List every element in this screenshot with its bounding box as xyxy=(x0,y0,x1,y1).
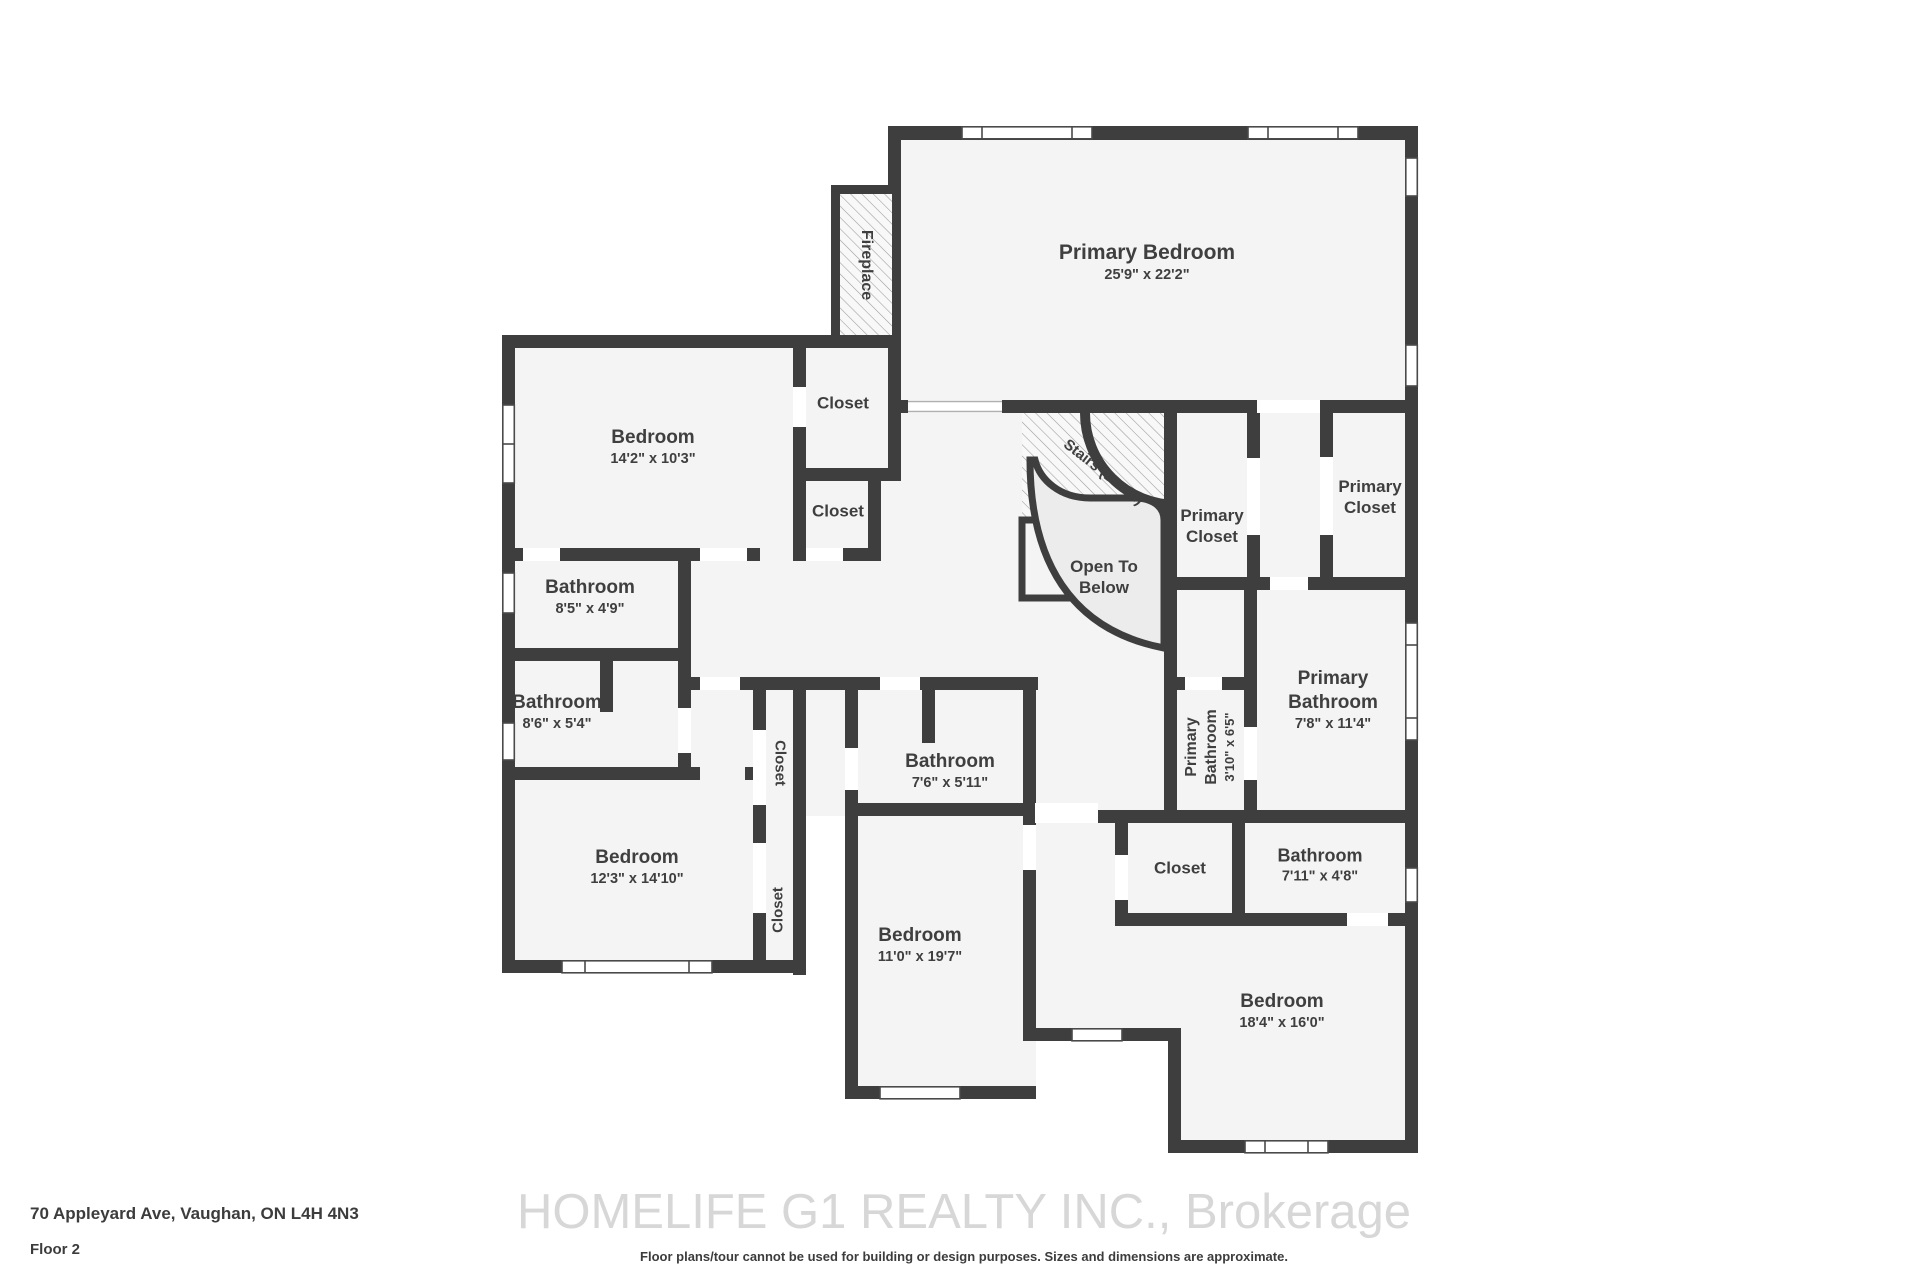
floor-number: Floor 2 xyxy=(30,1241,80,1258)
room-name: Bedroom xyxy=(1239,990,1324,1014)
label-primary-closet-right: Primary Closet xyxy=(1330,476,1410,519)
door-opening xyxy=(1023,825,1036,870)
room-name: Primary Closet xyxy=(1172,505,1252,548)
room-dims: 14'2" x 10'3" xyxy=(610,450,695,468)
wall-segment xyxy=(868,481,881,561)
wall-segment xyxy=(922,690,935,743)
wall-segment xyxy=(920,677,1038,690)
door-opening xyxy=(523,548,560,561)
wall-segment xyxy=(678,753,691,767)
label-bedroom-184: Bedroom 18'4" x 16'0" xyxy=(1239,990,1324,1032)
wall-segment xyxy=(1222,677,1244,690)
window xyxy=(1406,345,1418,386)
room-name: Closet xyxy=(1154,857,1206,878)
door-opening xyxy=(1270,577,1308,590)
label-bedroom-142: Bedroom 14'2" x 10'3" xyxy=(610,426,695,468)
disclaimer-text: Floor plans/tour cannot be used for buil… xyxy=(640,1249,1288,1264)
wall-segment xyxy=(1164,413,1177,823)
room-name: Bathroom xyxy=(1278,845,1363,868)
window xyxy=(1072,1029,1122,1041)
wall-segment xyxy=(753,913,766,973)
wall-segment xyxy=(1308,577,1418,590)
room-dims: 3'10" x 6'5" xyxy=(1222,692,1238,802)
door-opening xyxy=(1347,913,1388,926)
room-dims: 8'5" x 4'9" xyxy=(545,600,635,618)
room-name: Primary Bathroom xyxy=(1273,667,1393,715)
wall-segment xyxy=(1115,823,1128,855)
room-name: Bathroom xyxy=(545,576,635,600)
window xyxy=(1245,1141,1328,1153)
property-address: 70 Appleyard Ave, Vaughan, ON L4H 4N3 xyxy=(30,1204,359,1224)
wall-segment xyxy=(1320,413,1333,457)
window xyxy=(1406,868,1418,902)
label-closet-vertical-2: Closet xyxy=(770,887,789,933)
wall-segment xyxy=(1244,590,1257,727)
door-opening xyxy=(845,748,858,790)
room-dims: 7'8" x 11'4" xyxy=(1273,715,1393,733)
wall-segment xyxy=(1002,400,1257,413)
wall-segment xyxy=(793,427,806,548)
wall-segment xyxy=(502,648,691,661)
room-name: Primary Bathroom xyxy=(1182,692,1222,802)
wall-segment xyxy=(691,677,700,690)
door-opening xyxy=(700,548,747,561)
door-opening xyxy=(793,387,806,427)
label-bathroom-711: Bathroom 7'11" x 4'8" xyxy=(1278,845,1363,886)
room-dims: 25'9" x 22'2" xyxy=(1059,266,1235,284)
room-name: Fireplace xyxy=(856,230,876,300)
label-bedroom-123: Bedroom 12'3" x 14'10" xyxy=(590,846,683,888)
label-primary-closet-left: Primary Closet xyxy=(1172,505,1252,548)
window xyxy=(1248,127,1358,139)
room-name: Closet xyxy=(770,887,789,933)
room-name: Bedroom xyxy=(610,426,695,450)
label-closet-vertical-1: Closet xyxy=(770,740,789,786)
wall-segment xyxy=(888,126,901,192)
window xyxy=(1406,623,1418,740)
room-name: Closet xyxy=(817,392,869,413)
floor-plan-drawing xyxy=(0,0,1920,1280)
room-name: Closet xyxy=(770,740,789,786)
wall-segment xyxy=(845,677,858,748)
brokerage-watermark: HOMELIFE G1 REALTY INC., Brokerage xyxy=(503,1180,1425,1244)
room-name: Primary Bedroom xyxy=(1059,240,1235,266)
label-bathroom-86: Bathroom 8'6" x 5'4" xyxy=(512,691,602,733)
wall-segment xyxy=(793,348,806,387)
door-opening xyxy=(753,843,766,913)
label-bathroom-76: Bathroom 7'6" x 5'11" xyxy=(905,750,995,792)
door-opening xyxy=(806,548,843,561)
wall-segment xyxy=(1164,577,1270,590)
wall-segment xyxy=(1115,900,1128,913)
door-opening xyxy=(1244,727,1257,780)
label-bathroom-85: Bathroom 8'5" x 4'9" xyxy=(545,576,635,618)
door-opening xyxy=(1115,855,1128,900)
wall-segment xyxy=(1247,413,1260,458)
wall-segment xyxy=(502,767,700,780)
window xyxy=(1406,158,1418,196)
wall-segment xyxy=(793,548,806,561)
label-primary-bathroom: Primary Bathroom 7'8" x 11'4" xyxy=(1273,667,1393,733)
wall-segment xyxy=(1244,780,1257,815)
room-dims: 7'6" x 5'11" xyxy=(905,774,995,792)
wall-segment xyxy=(845,790,858,1099)
room-dims: 12'3" x 14'10" xyxy=(590,870,683,888)
wall-segment xyxy=(1115,913,1347,926)
floor-bedroom-142 xyxy=(505,340,888,561)
room-dims: 18'4" x 16'0" xyxy=(1239,1014,1324,1032)
room-name: Bathroom xyxy=(512,691,602,715)
label-closet-mid: Closet xyxy=(812,500,864,521)
label-primary-bathroom-2: Primary Bathroom 3'10" x 6'5" xyxy=(1182,692,1238,802)
wall-segment xyxy=(753,677,766,730)
door-opening xyxy=(700,677,740,690)
wall-segment xyxy=(1023,870,1036,1030)
wall-segment xyxy=(1098,810,1418,823)
label-closet-184: Closet xyxy=(1154,857,1206,878)
floor-bedroom-184-lower xyxy=(1168,926,1412,1146)
wall-segment xyxy=(1023,690,1036,825)
room-name: Primary Closet xyxy=(1330,476,1410,519)
wall-segment xyxy=(502,335,901,348)
wall-segment xyxy=(600,661,613,712)
room-name: Bedroom xyxy=(590,846,683,870)
room-dims: 7'11" x 4'8" xyxy=(1278,867,1363,885)
wall-segment xyxy=(888,348,901,481)
wall-segment xyxy=(678,548,691,708)
label-primary-bedroom: Primary Bedroom 25'9" x 22'2" xyxy=(1059,240,1235,284)
floor-plan-sheet: Primary Bedroom 25'9" x 22'2" Bedroom 14… xyxy=(0,0,1920,1280)
room-name: Bathroom xyxy=(905,750,995,774)
door-opening xyxy=(1257,400,1320,413)
room-name: Open To Below xyxy=(1061,556,1147,599)
door-opening xyxy=(1185,677,1222,690)
door-opening xyxy=(880,677,920,690)
room-dims: 8'6" x 5'4" xyxy=(512,715,602,733)
room-name: Bedroom xyxy=(878,924,962,948)
room-dims: 11'0" x 19'7" xyxy=(878,948,962,966)
wall-segment xyxy=(793,677,806,975)
room-name: Closet xyxy=(812,500,864,521)
door-opening xyxy=(1035,803,1098,823)
wall-segment xyxy=(1320,400,1418,413)
wall-segment xyxy=(855,803,1035,816)
wall-segment xyxy=(1168,1028,1181,1153)
window xyxy=(503,573,515,613)
wall-segment xyxy=(753,805,766,843)
window xyxy=(880,1087,960,1099)
wall-segment xyxy=(793,468,888,481)
wall-segment xyxy=(747,548,760,561)
wall-segment xyxy=(1232,823,1245,913)
door-opening xyxy=(678,708,691,753)
label-open-to-below: Open To Below xyxy=(1061,556,1147,599)
label-bedroom-110: Bedroom 11'0" x 19'7" xyxy=(878,924,962,966)
wall-segment xyxy=(1320,535,1333,577)
label-fireplace: Fireplace xyxy=(856,230,876,300)
door-opening xyxy=(753,730,766,805)
label-closet-top: Closet xyxy=(817,392,869,413)
